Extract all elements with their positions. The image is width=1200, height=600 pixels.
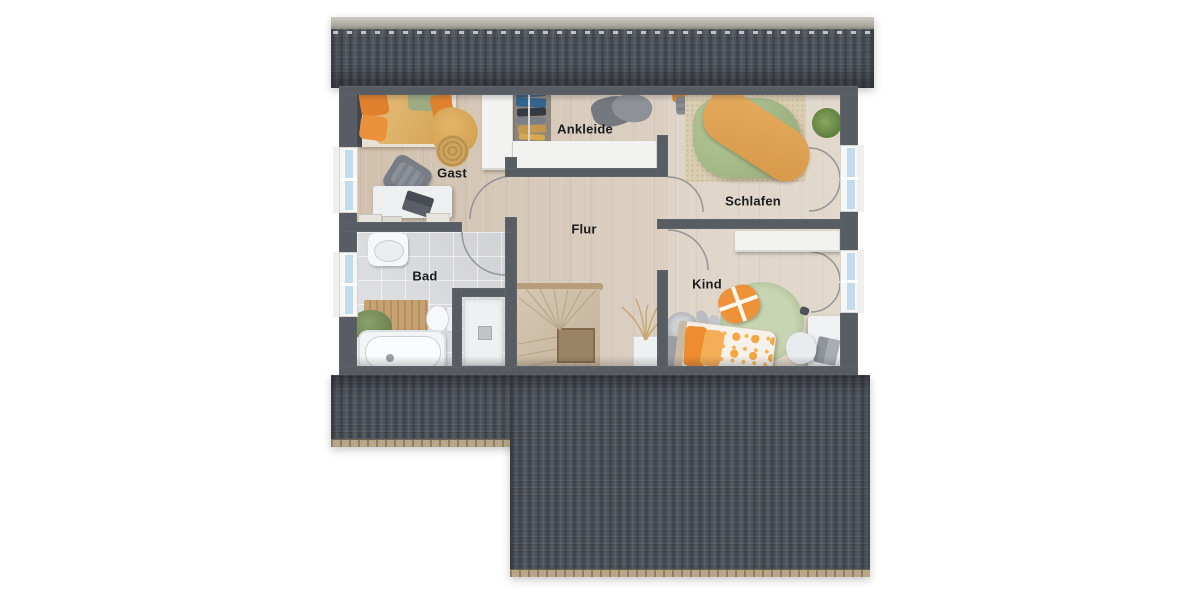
room-label-schlafen: Schlafen bbox=[725, 195, 781, 208]
room-label-gast: Gast bbox=[437, 167, 467, 180]
roof-top-tiles bbox=[331, 29, 874, 88]
floorplan-canvas: Gast Ankleide Schlafen Flur Bad Kind bbox=[0, 0, 1200, 600]
window-divider bbox=[340, 178, 357, 181]
bad-shower-drain bbox=[478, 326, 492, 340]
ankleide-clothes-tan bbox=[518, 124, 546, 133]
window-right-schlafen bbox=[838, 145, 864, 212]
window-right-kind bbox=[838, 250, 864, 313]
ankleide-clothes-gold bbox=[519, 133, 545, 140]
roof-bottom-left-tiles bbox=[331, 375, 521, 440]
window-divider bbox=[841, 280, 858, 283]
room-label-kind: Kind bbox=[692, 278, 722, 291]
window-divider bbox=[841, 177, 858, 180]
window-sill bbox=[857, 250, 864, 313]
schlafen-plant bbox=[812, 108, 842, 138]
wall-ankleide-flur bbox=[505, 168, 668, 177]
room-label-ankleide: Ankleide bbox=[557, 123, 613, 136]
bad-sink bbox=[368, 233, 408, 266]
ankleide-clothes-gray bbox=[517, 117, 545, 125]
roof-bottom-right-tiles bbox=[510, 375, 870, 570]
roof-top bbox=[331, 17, 874, 88]
roof-bottom-left bbox=[331, 375, 521, 447]
wall-post-bad-corner bbox=[505, 217, 517, 232]
roof-bottom-right bbox=[510, 375, 870, 577]
wall-exterior-right bbox=[840, 86, 858, 375]
roof-snowguard bbox=[333, 31, 872, 34]
gast-wicker-rug bbox=[436, 135, 469, 167]
room-label-flur: Flur bbox=[571, 223, 596, 236]
room-label-bad: Bad bbox=[412, 270, 437, 283]
wall-exterior-bottom bbox=[339, 366, 858, 375]
wall-gast-bad bbox=[339, 222, 462, 232]
window-left-bad bbox=[333, 252, 359, 317]
bad-toilet-bowl bbox=[426, 305, 449, 333]
roof-bottom-left-eave bbox=[331, 439, 521, 447]
window-left-gast bbox=[333, 147, 359, 213]
gast-pillow-orange-2 bbox=[359, 114, 389, 141]
kind-wardrobe bbox=[735, 231, 840, 252]
wall-ankleide-schlafen bbox=[657, 135, 668, 177]
bad-sink-bowl bbox=[374, 240, 404, 262]
wall-schlafen-kind bbox=[657, 219, 843, 229]
ankleide-clothes-dark bbox=[517, 107, 546, 117]
roof-bottom-right-eave bbox=[510, 569, 870, 577]
window-divider bbox=[340, 283, 357, 286]
wall-bad-right bbox=[505, 232, 517, 368]
window-sill bbox=[857, 145, 864, 212]
wall-shower-left bbox=[452, 288, 462, 368]
ankleide-wardrobe bbox=[513, 141, 657, 170]
wall-flur-kind bbox=[657, 270, 668, 368]
wall-exterior-top bbox=[339, 86, 858, 95]
